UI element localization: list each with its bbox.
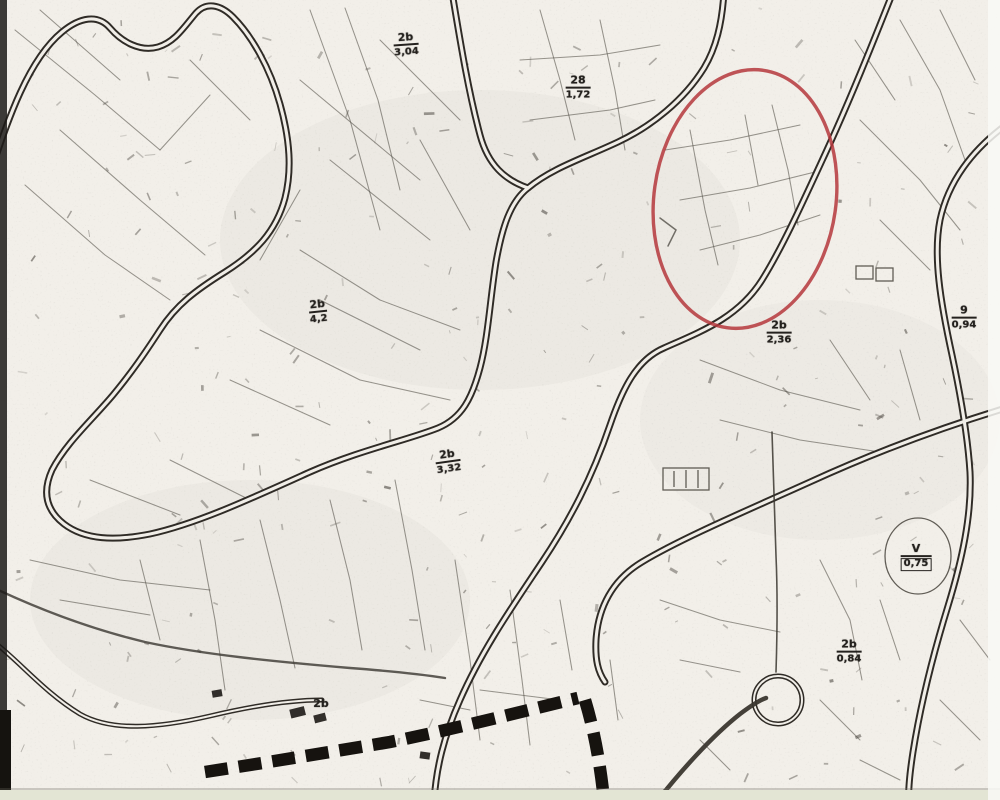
parcel-label-9-094: 90,94 (952, 305, 977, 332)
map-border-left (0, 0, 7, 800)
scanned-cadastral-map: 2b3,04281,722b4,22b2,3690,942b3,322b0,84… (0, 0, 1000, 800)
parcel-label-2b-304: 2b3,04 (393, 31, 419, 59)
map-canvas (0, 0, 1000, 800)
parcel-label-28-172: 281,72 (566, 75, 591, 102)
parcel-label-2b-332: 2b3,32 (434, 447, 462, 477)
parcel-label-2b-084: 2b0,84 (837, 639, 862, 666)
map-border-left-thick (0, 710, 11, 800)
parcel-label-2b-42: 2b4,2 (308, 298, 328, 326)
parcel-label-2b-236: 2b2,36 (767, 320, 792, 347)
building-mark (419, 751, 430, 759)
margin-strip-bottom (0, 790, 1000, 800)
parcel-label-v-075: V0,75 (901, 543, 932, 571)
parcel-label-2b-small: 2b (313, 698, 329, 711)
margin-strip-right (988, 0, 1000, 800)
scan-smudge (30, 480, 470, 720)
